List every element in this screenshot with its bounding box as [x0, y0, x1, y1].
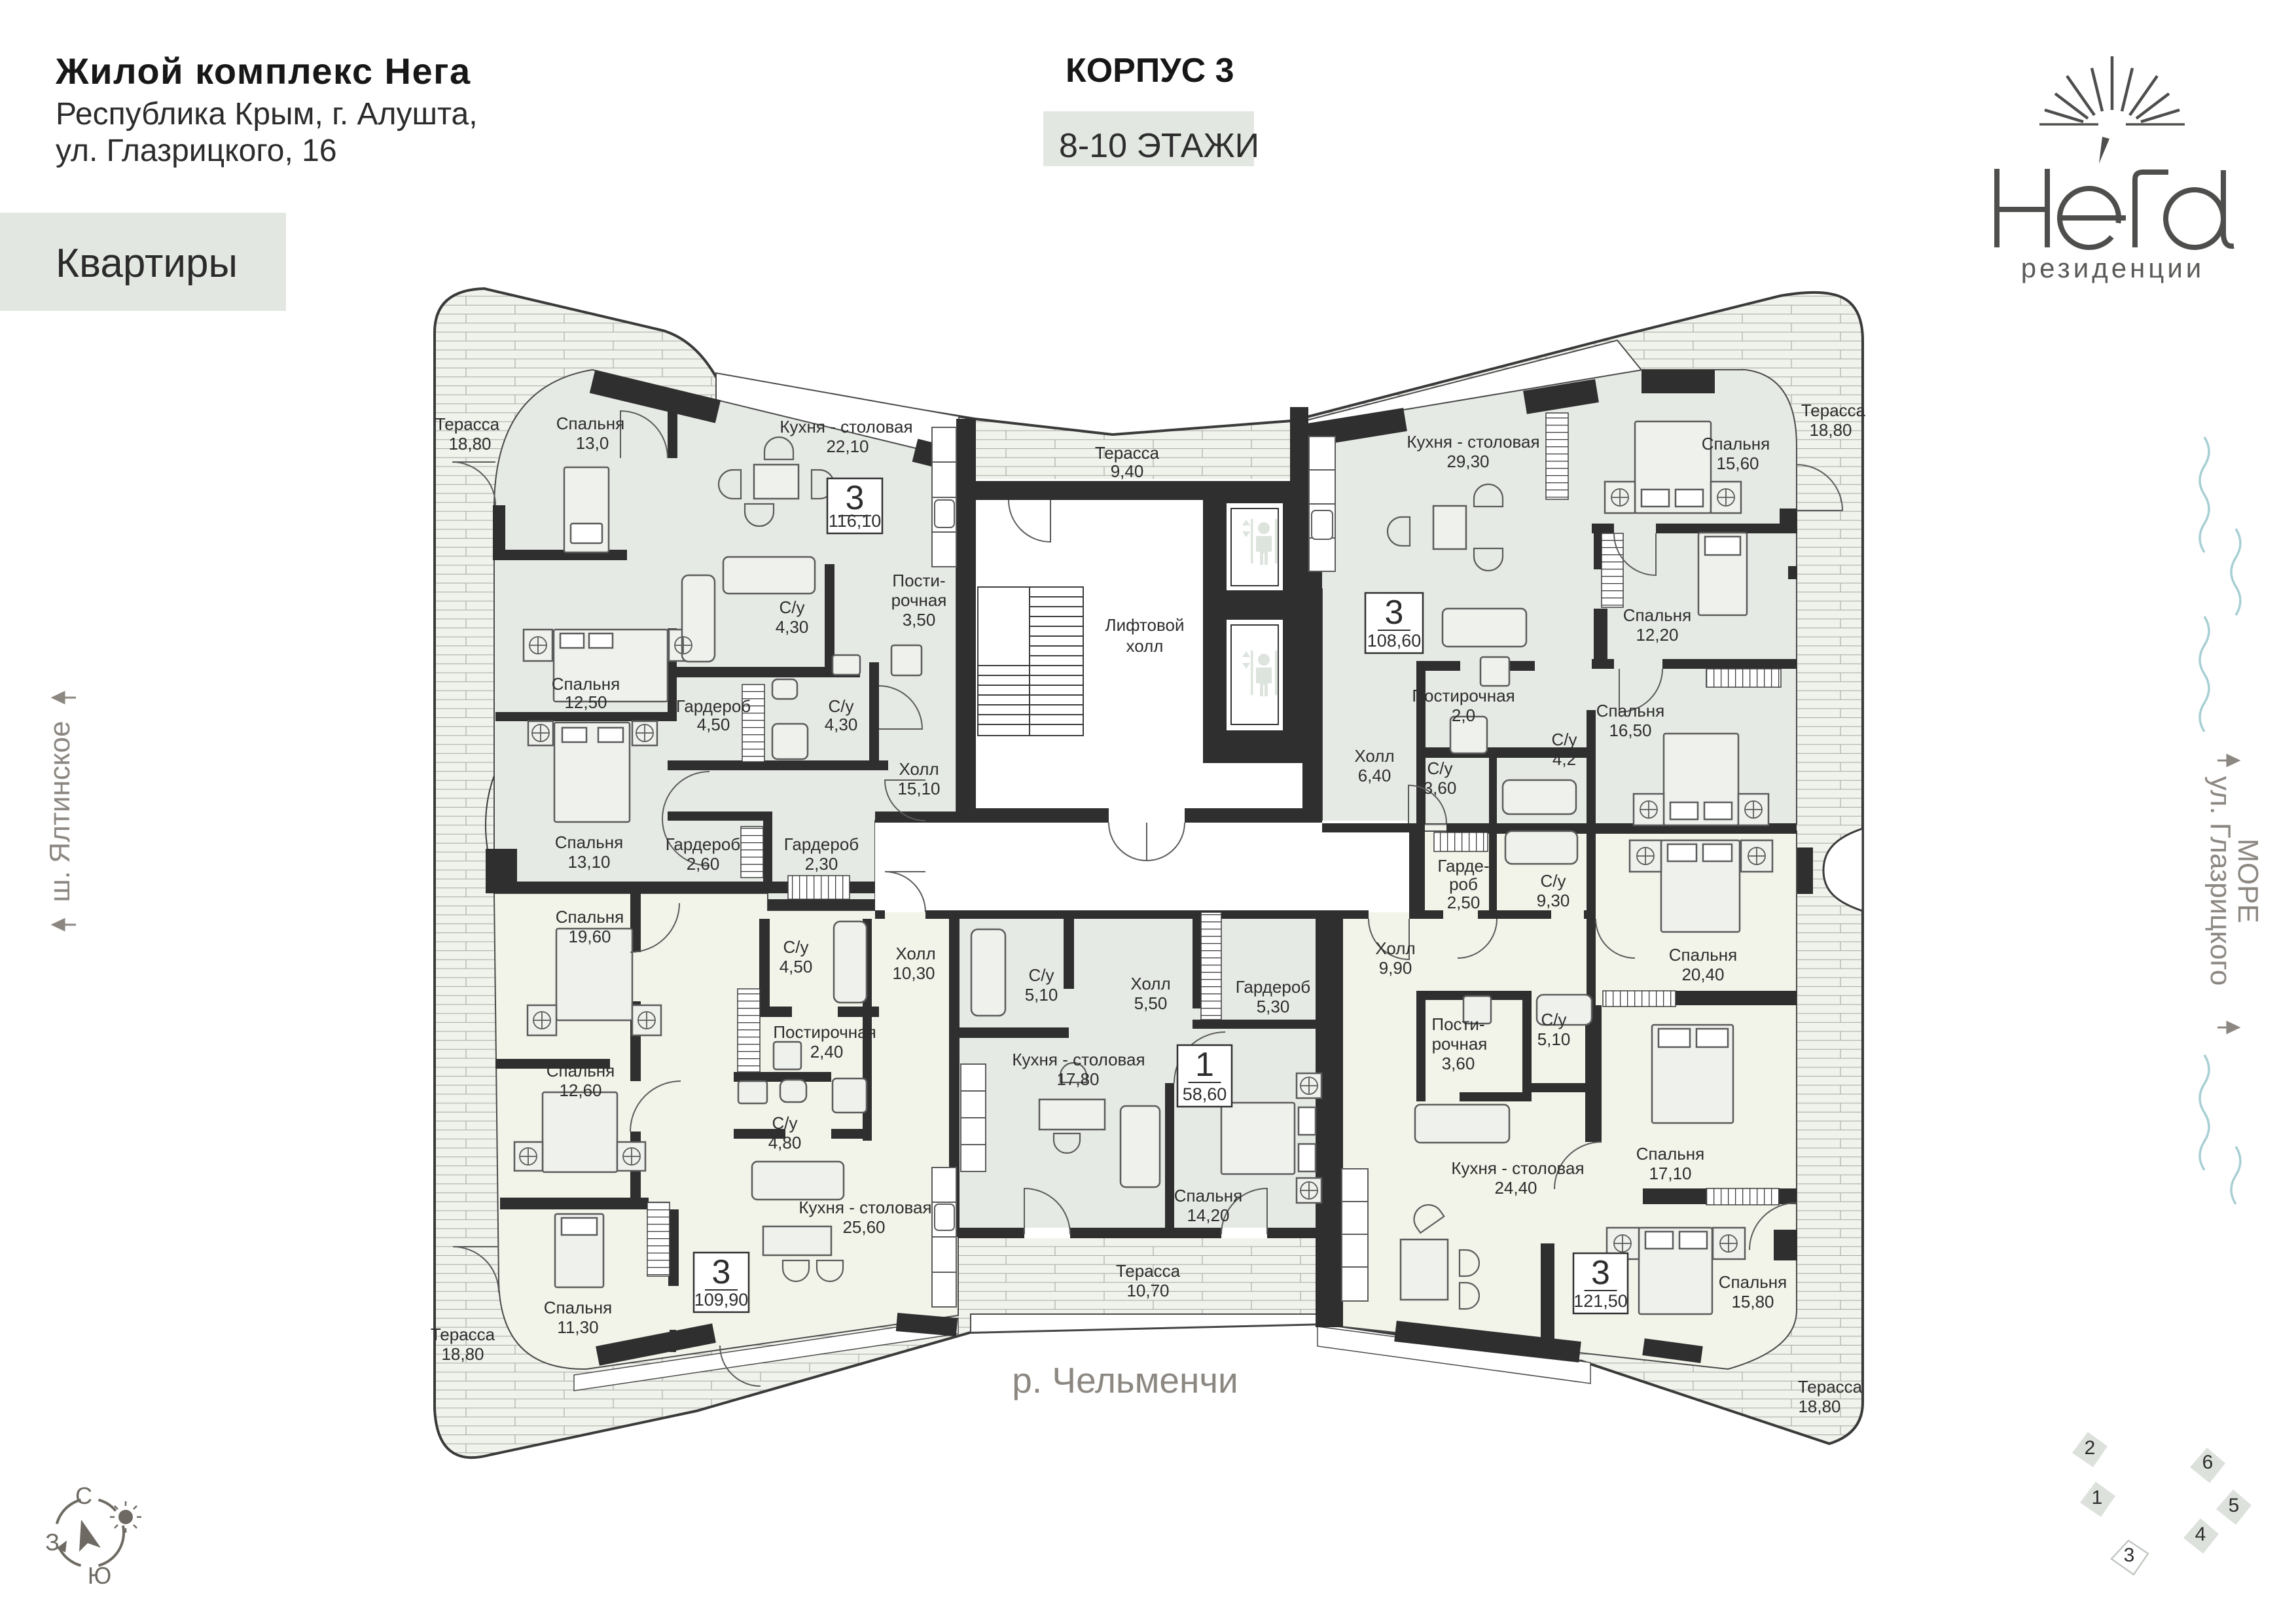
svg-text:С/у: С/у	[780, 597, 805, 617]
svg-text:4,50: 4,50	[780, 957, 813, 976]
svg-text:Гардероб: Гардероб	[1236, 977, 1310, 997]
svg-text:Спальня: Спальня	[1669, 945, 1737, 965]
svg-text:121,50: 121,50	[1573, 1291, 1628, 1311]
svg-text:3: 3	[712, 1253, 731, 1291]
svg-text:Ю: Ю	[88, 1562, 111, 1589]
svg-text:Спальня: Спальня	[1596, 701, 1664, 721]
svg-text:Гардероб: Гардероб	[784, 834, 859, 854]
svg-text:3: 3	[2124, 1544, 2135, 1566]
svg-text:3,50: 3,50	[903, 610, 936, 630]
svg-text:Терасса: Терасса	[1116, 1261, 1181, 1281]
svg-text:Кухня - столовая: Кухня - столовая	[780, 417, 912, 437]
svg-text:13,10: 13,10	[567, 852, 610, 872]
svg-text:29,30: 29,30	[1446, 452, 1489, 471]
svg-text:17,80: 17,80	[1056, 1069, 1099, 1089]
svg-text:З: З	[45, 1529, 60, 1556]
svg-text:Терасса: Терасса	[435, 414, 500, 434]
svg-text:14,20: 14,20	[1187, 1205, 1229, 1225]
svg-text:Холл: Холл	[895, 944, 935, 963]
svg-text:25,60: 25,60	[842, 1217, 885, 1237]
svg-text:С/у: С/у	[1029, 965, 1054, 985]
svg-text:роб: роб	[1449, 874, 1478, 894]
svg-text:ул. Глазрицкого: ул. Глазрицкого	[2204, 776, 2236, 986]
svg-text:Жилой комплекс Нега: Жилой комплекс Нега	[55, 50, 471, 92]
svg-text:2,30: 2,30	[805, 854, 838, 874]
svg-text:Спальня: Спальня	[1719, 1272, 1787, 1292]
svg-text:КОРПУС 3: КОРПУС 3	[1066, 52, 1234, 90]
svg-text:Постирочная: Постирочная	[773, 1022, 876, 1042]
svg-text:10,70: 10,70	[1126, 1281, 1169, 1300]
svg-text:15,80: 15,80	[1731, 1292, 1774, 1311]
svg-text:Спальня: Спальня	[1623, 605, 1691, 625]
svg-text:16,50: 16,50	[1609, 721, 1651, 740]
svg-text:15,10: 15,10	[897, 779, 940, 798]
svg-text:116,10: 116,10	[829, 511, 882, 531]
svg-text:Холл: Холл	[1375, 938, 1415, 958]
svg-text:4,80: 4,80	[768, 1133, 802, 1152]
svg-text:2,0: 2,0	[1452, 705, 1475, 725]
svg-text:20,40: 20,40	[1681, 965, 1724, 984]
svg-text:Спальня: Спальня	[547, 1061, 615, 1080]
svg-text:С: С	[75, 1482, 92, 1509]
svg-text:22,10: 22,10	[826, 437, 869, 456]
svg-text:11,30: 11,30	[557, 1317, 598, 1337]
svg-text:Терасса: Терасса	[431, 1325, 495, 1344]
svg-text:2,50: 2,50	[1447, 893, 1480, 912]
svg-text:18,80: 18,80	[1798, 1397, 1840, 1416]
svg-text:3: 3	[1385, 594, 1404, 632]
svg-text:ш. Ялтинское: ш. Ялтинское	[44, 721, 76, 902]
svg-text:17,10: 17,10	[1649, 1164, 1691, 1183]
svg-text:холл: холл	[1126, 636, 1164, 656]
svg-text:24,40: 24,40	[1494, 1178, 1537, 1198]
svg-text:5,10: 5,10	[1025, 985, 1058, 1005]
svg-text:1: 1	[2092, 1487, 2103, 1508]
svg-text:109,90: 109,90	[694, 1290, 749, 1310]
svg-text:С/у: С/у	[1427, 758, 1453, 778]
svg-text:6,40: 6,40	[1358, 766, 1391, 785]
svg-text:С/у: С/у	[829, 696, 854, 716]
svg-text:Гарде-: Гарде-	[1437, 856, 1489, 876]
svg-text:С/у: С/у	[783, 937, 809, 957]
svg-text:108,60: 108,60	[1367, 631, 1422, 651]
svg-text:4: 4	[2195, 1524, 2206, 1545]
svg-text:4,30: 4,30	[825, 715, 858, 734]
svg-text:9,90: 9,90	[1379, 958, 1412, 978]
svg-text:18,80: 18,80	[448, 434, 491, 454]
svg-text:10,30: 10,30	[892, 963, 935, 983]
svg-text:12,20: 12,20	[1636, 625, 1678, 645]
svg-text:19,60: 19,60	[568, 927, 611, 946]
svg-text:резиденции: резиденции	[2021, 253, 2205, 283]
svg-text:3,60: 3,60	[1442, 1054, 1475, 1073]
svg-text:2,60: 2,60	[687, 854, 720, 874]
svg-text:Спальня: Спальня	[1636, 1144, 1704, 1164]
svg-text:4,50: 4,50	[697, 715, 730, 734]
svg-text:С/у: С/у	[1541, 871, 1566, 891]
svg-text:8-10 ЭТАЖИ: 8-10 ЭТАЖИ	[1059, 127, 1259, 165]
svg-text:С/у: С/у	[1541, 1010, 1567, 1029]
svg-text:Холл: Холл	[899, 759, 939, 779]
svg-text:5: 5	[2229, 1495, 2240, 1516]
svg-text:Республика Крым, г. Алушта,: Республика Крым, г. Алушта,	[56, 97, 478, 132]
svg-text:ул. Глазрицкого, 16: ул. Глазрицкого, 16	[56, 134, 337, 168]
svg-text:Постирочная: Постирочная	[1412, 686, 1515, 705]
svg-text:4,30: 4,30	[776, 617, 809, 637]
svg-text:Гардероб: Гардероб	[676, 696, 751, 716]
svg-text:18,80: 18,80	[1809, 420, 1852, 440]
svg-text:1: 1	[1195, 1046, 1214, 1084]
svg-text:Холл: Холл	[1130, 974, 1170, 993]
svg-text:58,60: 58,60	[1183, 1084, 1227, 1104]
svg-text:9,40: 9,40	[1111, 461, 1144, 481]
svg-text:Лифтовой: Лифтовой	[1105, 615, 1185, 635]
svg-text:Спальня: Спальня	[555, 832, 623, 852]
svg-text:Терасса: Терасса	[1801, 401, 1866, 420]
svg-text:Кухня - столовая: Кухня - столовая	[1451, 1158, 1584, 1178]
svg-text:Пости-: Пости-	[892, 571, 945, 590]
svg-text:Кухня - столовая: Кухня - столовая	[1407, 432, 1539, 452]
svg-text:р. Чельменчи: р. Чельменчи	[1012, 1360, 1238, 1400]
svg-text:2: 2	[2085, 1437, 2096, 1459]
svg-text:Квартиры: Квартиры	[56, 241, 238, 286]
svg-text:С/у: С/у	[1552, 730, 1577, 749]
svg-text:5,30: 5,30	[1257, 997, 1290, 1016]
svg-text:Спальня: Спальня	[556, 414, 624, 433]
svg-text:Спальня: Спальня	[544, 1298, 612, 1317]
svg-text:13,0: 13,0	[576, 433, 609, 453]
svg-text:18,80: 18,80	[441, 1344, 484, 1364]
svg-text:Спальня: Спальня	[1702, 434, 1770, 454]
svg-text:15,60: 15,60	[1716, 454, 1759, 473]
svg-text:3,60: 3,60	[1424, 778, 1457, 798]
svg-text:Пости-: Пости-	[1431, 1014, 1484, 1034]
svg-text:3: 3	[1591, 1254, 1610, 1292]
svg-text:рочная: рочная	[891, 590, 947, 610]
svg-text:4,2: 4,2	[1552, 749, 1576, 769]
svg-text:рочная: рочная	[1432, 1034, 1488, 1054]
svg-text:Кухня - столовая: Кухня - столовая	[798, 1198, 931, 1217]
svg-text:Спальня: Спальня	[556, 907, 624, 927]
svg-text:Спальня: Спальня	[1174, 1186, 1242, 1205]
svg-text:12,50: 12,50	[564, 692, 607, 712]
svg-text:Кухня - столовая: Кухня - столовая	[1012, 1050, 1145, 1069]
svg-text:Холл: Холл	[1354, 746, 1394, 766]
svg-text:Терасса: Терасса	[1095, 443, 1160, 463]
svg-text:Гардероб: Гардероб	[666, 834, 740, 854]
svg-text:5,50: 5,50	[1134, 993, 1168, 1013]
svg-text:С/у: С/у	[772, 1113, 798, 1133]
svg-text:Терасса: Терасса	[1798, 1377, 1863, 1397]
svg-text:2,40: 2,40	[810, 1042, 844, 1061]
svg-text:9,30: 9,30	[1537, 891, 1570, 910]
svg-text:12,60: 12,60	[559, 1080, 601, 1100]
svg-text:6: 6	[2202, 1452, 2214, 1473]
svg-text:5,10: 5,10	[1537, 1029, 1571, 1049]
svg-text:Спальня: Спальня	[552, 674, 620, 694]
